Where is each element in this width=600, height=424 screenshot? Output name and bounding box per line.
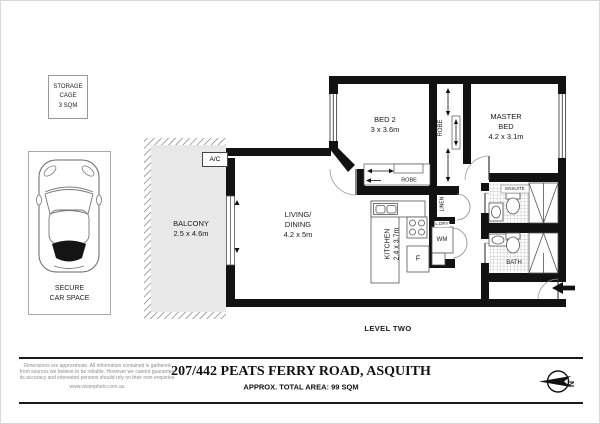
linen-label: LINEN	[440, 197, 447, 212]
bed2-robe-label: ROBE	[400, 177, 418, 184]
footer-rule-top	[19, 357, 583, 359]
ensuite-shower-icon	[529, 183, 558, 223]
wall-ensuite-bath	[481, 223, 566, 233]
wall-master-bottom	[489, 173, 566, 182]
website-link[interactable]: www.visionphoto.com.au	[15, 384, 179, 390]
ac-unit-label: A/C	[202, 152, 228, 167]
washing-machine-label: WM	[437, 236, 448, 244]
level-label: LEVEL TWO	[364, 324, 411, 334]
balcony-label: BALCONY 2.5 x 4.6m	[173, 219, 209, 239]
bed2-robe	[364, 164, 430, 185]
ensuite-label: ENSUITE	[505, 186, 525, 192]
wall-kitchen-top	[357, 186, 459, 195]
robe-fittings	[364, 88, 460, 185]
linen-doors	[457, 194, 470, 220]
bath-toilet-icon	[506, 233, 520, 253]
bed2-label: BED 2 3 x 3.6m	[371, 115, 400, 135]
car-space-label: SECURE CAR SPACE	[29, 284, 110, 304]
wall-living-top	[226, 148, 331, 156]
disclaimer-text: Dimensions are approximate. All informat…	[15, 363, 179, 390]
master-window	[558, 94, 567, 158]
wall-bed2-left-upper	[329, 84, 338, 94]
kitchen-label: KITCHEN 2.4 x 3.7m	[384, 228, 403, 261]
wall-right-upper	[558, 84, 566, 94]
footer-rule-bottom	[19, 402, 583, 404]
master-bed-label: MASTER BED 4.2 x 3.1m	[488, 112, 523, 142]
robe-corridor-label: ROBE	[437, 119, 445, 136]
floorplan-page: BALCONY 2.5 x 4.6m LIVING/ DINING 4.2 x …	[0, 0, 600, 424]
bath-label: BATH	[506, 259, 522, 267]
laundry-label: L.DRY	[434, 221, 449, 227]
balcony-hatch-left	[144, 138, 151, 319]
bath-vanity-icon	[489, 234, 507, 246]
storage-cage-box: STORAGE CAGE 3 SQM	[48, 75, 88, 119]
balcony-sliding-door	[227, 196, 240, 265]
car-top-view-icon	[36, 158, 102, 276]
wall-hall-bath-1	[481, 183, 489, 191]
bed2-window	[329, 94, 339, 141]
wall-bottom	[229, 299, 566, 307]
wall-robe-master	[463, 84, 471, 164]
bathtub-icon	[529, 233, 558, 273]
wall-diagonal	[329, 148, 355, 172]
bathroom-fixtures	[489, 233, 558, 273]
windows	[329, 94, 567, 158]
balcony-hatch-bottom	[151, 312, 226, 319]
bed2-door	[330, 169, 356, 195]
balcony-hatch-top	[151, 138, 226, 145]
wall-top	[329, 76, 566, 84]
living-dining-label: LIVING/ DINING 4.2 x 5m	[284, 210, 313, 240]
ensuite-toilet-icon	[506, 193, 520, 214]
total-area-subtitle: APPROX. TOTAL AREA: 99 SQM	[243, 383, 358, 392]
compass-north-label: N	[566, 381, 576, 387]
compass-icon	[537, 369, 583, 395]
fridge-label: F	[416, 254, 420, 263]
entry-arrow-icon	[552, 282, 575, 294]
stove-icon	[407, 217, 427, 238]
wall-bath-bottom	[481, 273, 566, 282]
car-space-box: SECURE CAR SPACE	[28, 151, 111, 315]
ensuite-vanity-icon	[489, 203, 503, 221]
master-robe	[446, 88, 460, 182]
wall-balcony-lower	[226, 265, 235, 307]
laundry-doors	[453, 228, 467, 258]
sink-icon	[374, 204, 398, 215]
property-address-title: 207/442 PEATS FERRY ROAD, ASQUITH	[171, 364, 431, 380]
